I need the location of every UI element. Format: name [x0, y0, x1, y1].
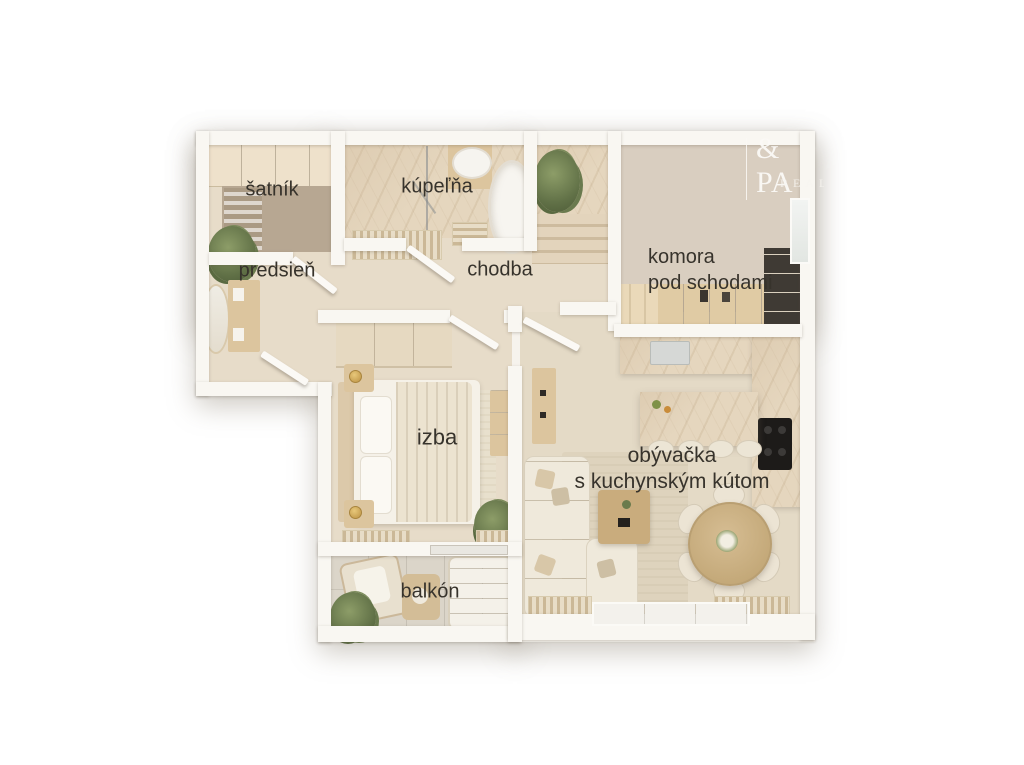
living-floor-vent	[528, 596, 592, 616]
throw-pillow	[534, 468, 555, 489]
wall-living-left-stub	[508, 306, 522, 332]
wall-kupelna-bottom-left	[344, 238, 406, 251]
table-lamp	[349, 506, 362, 519]
room-label-predsien: predsieň	[239, 259, 316, 284]
wall-chodba-izba	[318, 310, 450, 323]
watermark-text-sub: REALI	[780, 176, 824, 191]
wall-wing-bottom	[196, 382, 332, 396]
cooktop-burner	[778, 448, 786, 456]
room-label-satnik: šatník	[245, 178, 298, 203]
balkon-glass-door	[430, 545, 508, 555]
floor-plan-render: šatník kúpeľňa predsieň chodba komora po…	[0, 0, 1024, 765]
wall-kupelna-bottom-right	[462, 238, 532, 251]
room-label-obyvacka: obývačka s kuchynským kútom	[575, 443, 770, 495]
coffee-table-decor	[618, 518, 630, 527]
wall-outer-top	[196, 131, 814, 145]
predsien-console-drawer	[233, 328, 244, 341]
bed-pillow	[360, 396, 392, 454]
room-label-komora-line1: komora	[648, 244, 773, 270]
izba-wardrobe	[336, 322, 452, 368]
console-decor	[540, 412, 546, 418]
watermark-logo: & PA REALI	[744, 132, 824, 208]
living-side-console	[532, 368, 556, 444]
room-label-obyvacka-line1: obývačka	[575, 443, 770, 469]
island-fruit	[652, 400, 661, 409]
table-lamp	[349, 370, 362, 383]
console-decor	[540, 390, 546, 396]
island-fruit	[664, 406, 671, 413]
kitchen-sink	[650, 341, 690, 365]
coffee-table	[598, 490, 650, 544]
cooktop-burner	[764, 426, 772, 434]
wall-chodba-living-stub	[560, 302, 616, 315]
wall-staircase-komora	[608, 131, 621, 331]
coffee-table-plant	[622, 500, 631, 509]
wall-kupelna-staircase	[524, 131, 537, 251]
wall-balkon-bottom	[318, 626, 520, 642]
room-label-kupelna: kúpeľňa	[401, 175, 472, 200]
staircase-plant	[534, 150, 580, 212]
room-label-balkon: balkón	[401, 580, 460, 605]
bed-blanket	[396, 382, 472, 522]
wall-outer-left-wing	[196, 131, 209, 396]
room-label-komora: komora pod schodami	[648, 244, 773, 296]
predsien-console-drawer	[233, 288, 244, 301]
room-label-obyvacka-line2: s kuchynským kútom	[575, 469, 770, 495]
wall-living-left	[508, 366, 522, 642]
wall-outer-left-main	[318, 382, 331, 642]
table-centerpiece	[716, 530, 738, 552]
wall-satnik-kupelna	[331, 131, 345, 265]
room-label-komora-line2: pod schodami	[648, 270, 773, 296]
room-label-chodba: chodba	[467, 258, 533, 283]
staircase-steps	[532, 214, 614, 264]
cooktop-burner	[778, 426, 786, 434]
sliding-glass-door	[592, 602, 750, 626]
wall-kitchen-top	[614, 324, 802, 337]
room-label-izba: izba	[417, 423, 457, 451]
throw-pillow	[551, 487, 570, 506]
